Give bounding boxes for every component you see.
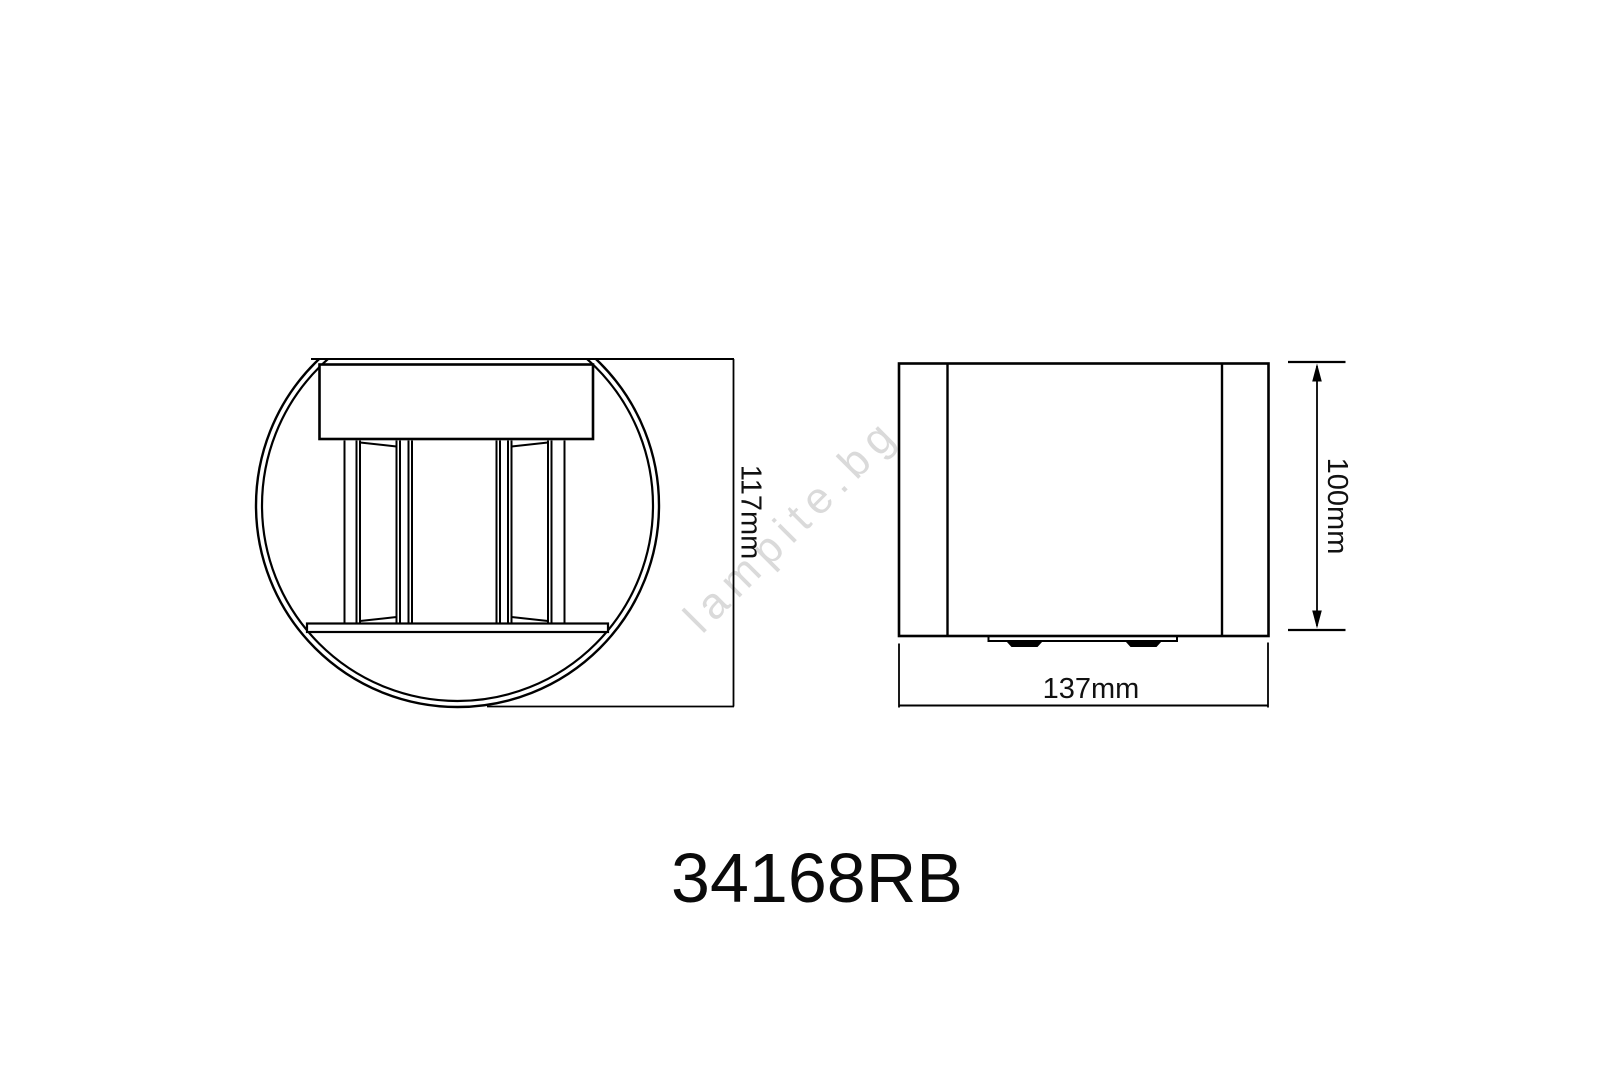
front-top-block <box>320 365 594 440</box>
side-body-outline <box>899 364 1269 637</box>
front-bottom-bar <box>307 624 608 633</box>
side-foot-right <box>1126 642 1162 648</box>
technical-drawing-page: lampite.bg <box>0 0 1600 1067</box>
dimension-diagram: lampite.bg <box>0 0 1600 1067</box>
side-height-label: 100mm <box>1321 458 1353 555</box>
side-width-label: 137mm <box>1043 673 1140 705</box>
front-height-label: 117mm <box>735 465 767 560</box>
side-foot-left <box>1007 642 1043 648</box>
product-code-title: 34168RB <box>671 839 963 917</box>
